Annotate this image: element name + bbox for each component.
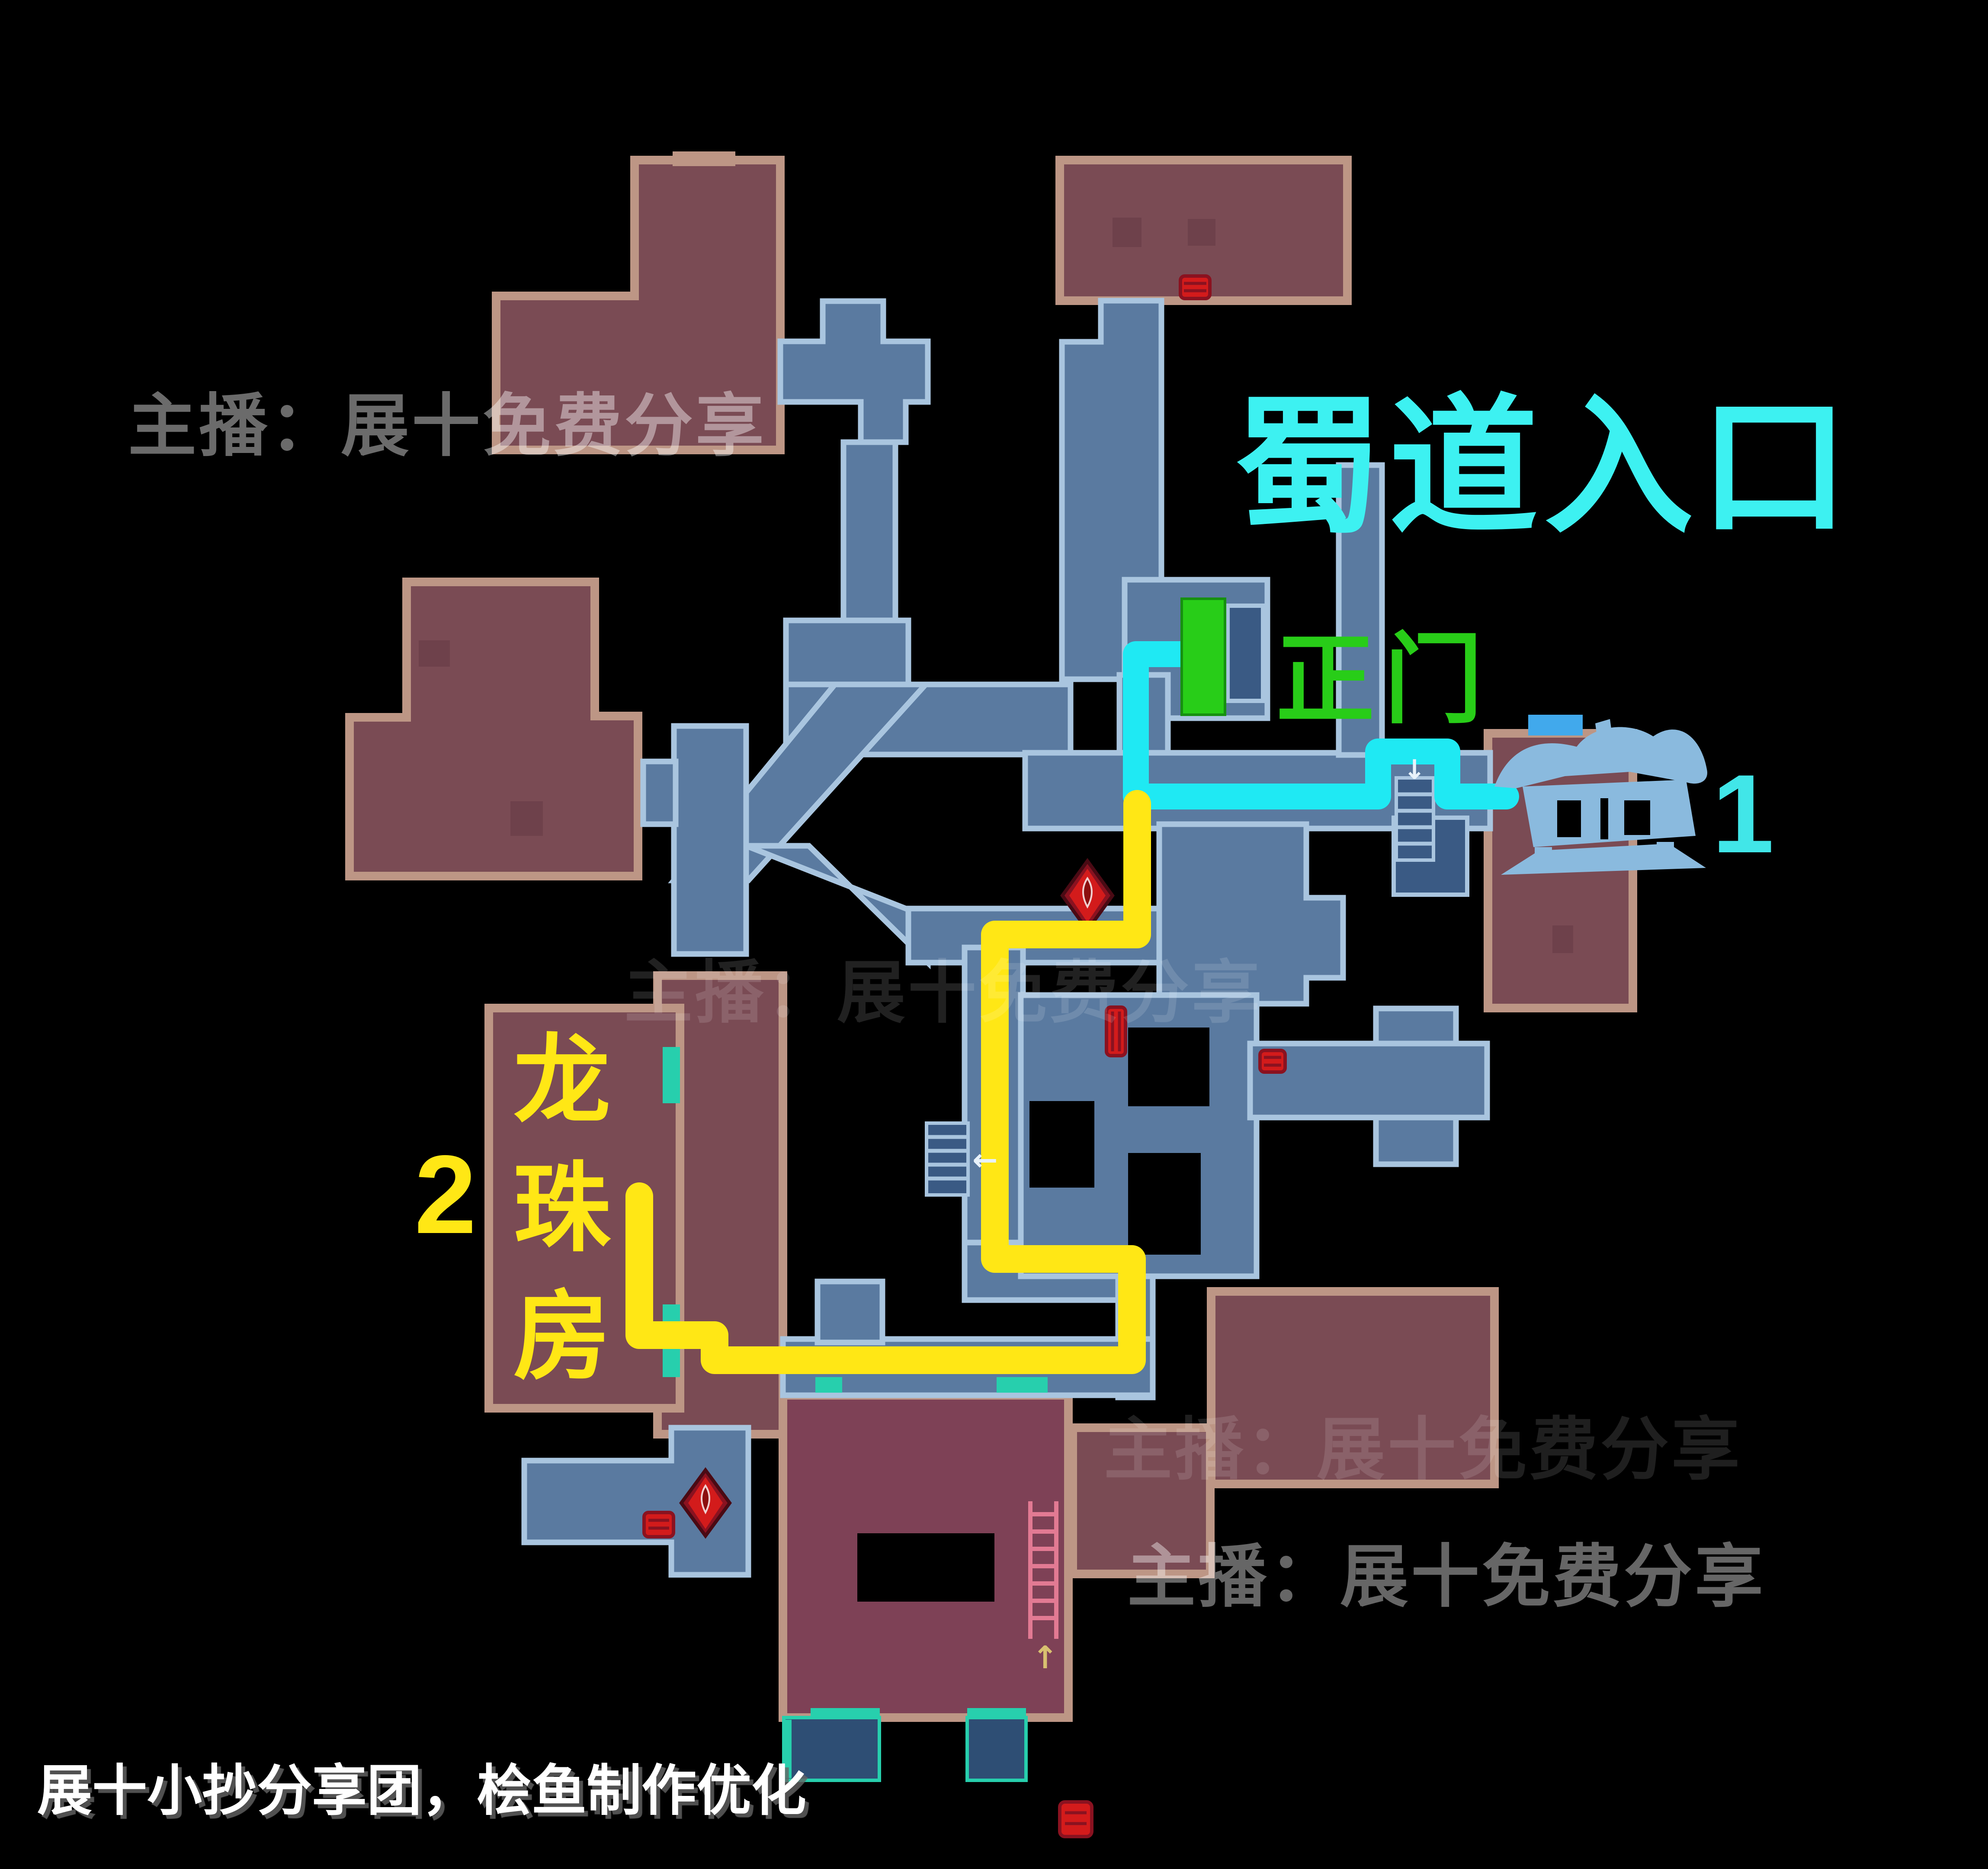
watermark: 主播：展十免费分享 xyxy=(128,370,766,469)
door-strip xyxy=(967,1708,1026,1719)
door-strip xyxy=(663,1047,680,1103)
crate xyxy=(1113,218,1141,247)
room-label-char: 房 xyxy=(504,1273,620,1401)
center-mass-hole xyxy=(1128,1028,1209,1106)
dragon-pearl-room-label: 龙 珠 房 xyxy=(504,1017,620,1401)
site-flag-icon xyxy=(1260,1050,1285,1072)
crate xyxy=(419,640,450,667)
game-map-screenshot: ← ↓ ↑ 蜀道入口 正门 1 2 龙 珠 房 主播：展十免费分享 主播：展十免… xyxy=(0,0,1988,1869)
gate-pocket-inner xyxy=(1228,606,1263,701)
center-mass-hole xyxy=(1128,1153,1201,1255)
small-room-mid-bottom xyxy=(818,1281,882,1342)
room-label-char: 龙 xyxy=(504,1017,620,1145)
crate xyxy=(510,801,543,836)
door-strip xyxy=(997,1377,1048,1393)
site-flag-icon xyxy=(1180,276,1210,299)
credit-line: 展十小抄分享团，桧鱼制作优化 xyxy=(37,1746,806,1826)
marker-1-label: 1 xyxy=(1712,749,1774,878)
arrow-up-icon: ↑ xyxy=(1032,1639,1058,1676)
neck-corridor xyxy=(843,442,895,620)
bright-blue-bar xyxy=(1528,715,1583,735)
stairs-icon xyxy=(1396,778,1433,860)
plus-room-top xyxy=(780,301,928,442)
door-strip xyxy=(811,1708,880,1719)
left-stub xyxy=(643,761,676,824)
room-bottom-hole xyxy=(857,1533,994,1602)
roof-notch xyxy=(673,151,735,166)
gate-label: 正门 xyxy=(1276,600,1492,742)
lantern-cutouts xyxy=(1557,798,1650,839)
watermark: 主播：展十免费分享 xyxy=(624,937,1263,1036)
gate-door-marker xyxy=(1182,599,1225,715)
center-mass-hole xyxy=(1029,1101,1094,1188)
site-flag-icon xyxy=(644,1513,673,1537)
bottom-room-right xyxy=(967,1718,1026,1780)
crate xyxy=(1552,925,1573,953)
site-flag-icon xyxy=(1060,1802,1092,1837)
left-column xyxy=(674,726,746,954)
door-strip xyxy=(815,1377,842,1393)
arrow-down-icon: ↓ xyxy=(1403,754,1426,785)
marker-2-label: 2 xyxy=(414,1130,477,1259)
crate xyxy=(1188,219,1215,246)
cross-arm xyxy=(786,620,908,688)
watermark: 主播：展十免费分享 xyxy=(1127,1521,1766,1620)
watermark: 主播：展十免费分享 xyxy=(1104,1394,1742,1493)
arrow-left-icon: ← xyxy=(972,1142,998,1178)
map-title: 蜀道入口 xyxy=(1234,346,1855,562)
stairs-icon xyxy=(927,1123,968,1195)
room-label-char: 珠 xyxy=(504,1145,620,1273)
room-left-mid xyxy=(350,582,638,876)
